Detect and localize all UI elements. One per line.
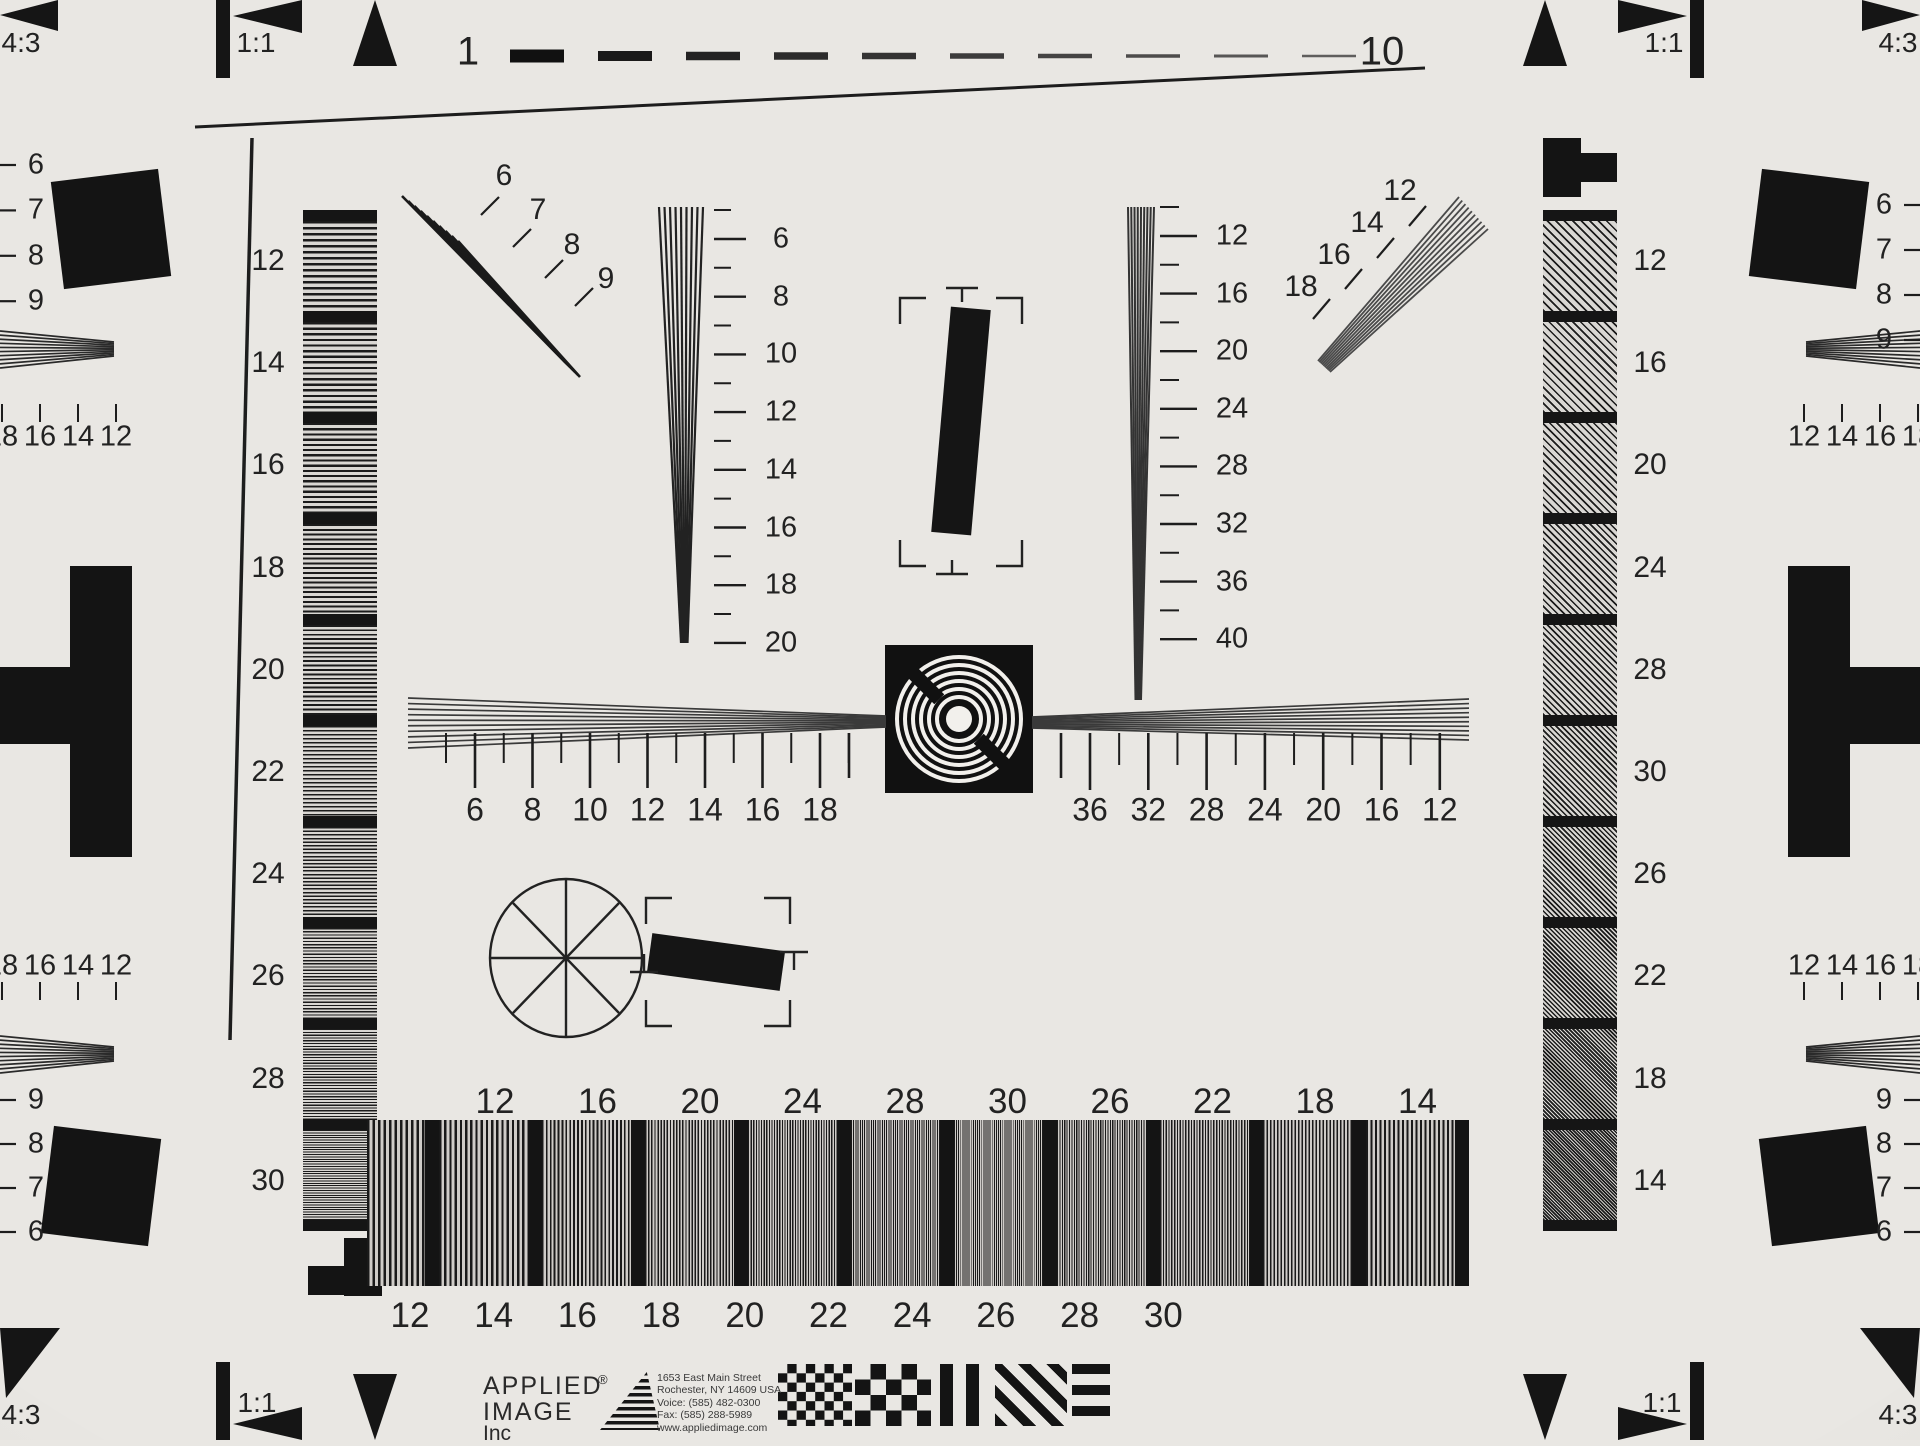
scale-label: 8	[773, 280, 789, 313]
scale-label: 8	[564, 228, 581, 262]
scale-label: 12	[100, 421, 132, 454]
strip-separator	[1543, 311, 1617, 322]
scale-label: 9	[598, 262, 615, 296]
ratio-label-br: 4:3	[1879, 1399, 1918, 1431]
scale-label: 20	[251, 653, 284, 687]
bullseye-target	[885, 645, 1033, 793]
strip-grating	[1543, 1029, 1617, 1119]
bar-grating	[1057, 1120, 1146, 1286]
checkerboard-coarse-patch	[855, 1364, 931, 1426]
scale-label: 28	[251, 1062, 284, 1096]
scale-label: 18	[765, 569, 797, 602]
scale-label: 8	[28, 1128, 44, 1161]
scale-label: 24	[251, 857, 284, 891]
scale-label: 16	[745, 792, 781, 829]
scale-label: 6	[28, 1216, 44, 1249]
scale-label: 12	[1633, 244, 1666, 278]
scale-label: 28	[886, 1082, 925, 1122]
strip-separator	[303, 513, 377, 524]
strip-grating	[1543, 827, 1617, 917]
scale-label: 9	[28, 1084, 44, 1117]
scale-label: 24	[1216, 392, 1248, 425]
strip-separator	[1543, 1220, 1617, 1231]
address-line: Voice: (585) 482-0300	[657, 1397, 781, 1409]
strip-separator	[303, 1119, 377, 1130]
ratio-label-bl: 4:3	[2, 1399, 41, 1431]
scale-label: 14	[1633, 1164, 1666, 1198]
strip-separator	[303, 1220, 377, 1231]
scale-label: 18	[642, 1296, 681, 1336]
scale-label: 20	[1305, 792, 1341, 829]
strip-grating	[303, 221, 377, 311]
scale-label: 30	[988, 1082, 1027, 1122]
checkerboard-fine-patch	[778, 1364, 852, 1426]
bar-separator	[1352, 1120, 1366, 1286]
scale-label: 32	[1216, 508, 1248, 541]
bar-separator	[1146, 1120, 1160, 1286]
scale-label: 7	[530, 193, 547, 227]
scale-label: 20	[725, 1296, 764, 1336]
bar-grating	[542, 1120, 631, 1286]
scale-label: 30	[1633, 755, 1666, 789]
brand-line-1: APPLIED	[483, 1372, 603, 1401]
scale-label: 36	[1216, 565, 1248, 598]
bar-grating	[1366, 1120, 1455, 1286]
left-resolution-strip	[303, 210, 377, 1231]
scale-label: 26	[251, 959, 284, 993]
scale-label: 30	[251, 1164, 284, 1198]
strip-separator	[303, 311, 377, 322]
bar-grating	[954, 1120, 1043, 1286]
strip-separator	[1543, 513, 1617, 524]
brand-address-block: 1653 East Main Street Rochester, NY 1460…	[657, 1372, 781, 1434]
strip-separator	[303, 412, 377, 423]
scale-label: 16	[1864, 421, 1896, 454]
strip-separator	[1543, 614, 1617, 625]
scale-label: 12	[391, 1296, 430, 1336]
scale-label: 7	[28, 1172, 44, 1205]
square-label-bl: 1:1	[238, 1387, 277, 1419]
strip-separator	[1543, 715, 1617, 726]
scale-label: 8	[1876, 1128, 1892, 1161]
bar-grating	[1160, 1120, 1249, 1286]
ratio-label-tr: 4:3	[1879, 27, 1918, 59]
scale-label: 7	[1876, 1172, 1892, 1205]
scale-label: 8	[1876, 279, 1892, 312]
scale-label: 14	[765, 453, 797, 486]
scale-label: 12	[630, 792, 666, 829]
scale-label: 10	[572, 792, 608, 829]
strip-grating	[303, 625, 377, 715]
scale-label: 12	[100, 950, 132, 983]
bar-grating	[439, 1120, 528, 1286]
strip-grating	[1543, 423, 1617, 513]
brand-line-3: Inc	[483, 1422, 511, 1446]
scale-label: 6	[1876, 1216, 1892, 1249]
address-line: 1653 East Main Street	[657, 1372, 781, 1384]
address-line: Rochester, NY 14609 USA	[657, 1384, 781, 1396]
bar-grating	[851, 1120, 940, 1286]
scale-label: 12	[1422, 792, 1458, 829]
scale-label: 16	[251, 448, 284, 482]
scale-label: 16	[24, 950, 56, 983]
scale-label: 18	[251, 551, 284, 585]
scale-label: 16	[1364, 792, 1400, 829]
scale-label: 14	[1826, 950, 1858, 983]
scale-label: 22	[809, 1296, 848, 1336]
scale-label: 6	[496, 159, 513, 193]
scale-label: 40	[1216, 623, 1248, 656]
scale-label: 8	[28, 239, 44, 272]
scale-label: 9	[1876, 324, 1892, 357]
scale-label: 9	[28, 285, 44, 318]
scale-label: 16	[1633, 346, 1666, 380]
scale-label: 7	[28, 194, 44, 227]
strip-grating	[303, 322, 377, 412]
scale-label: 26	[1633, 857, 1666, 891]
scale-label: 18	[1902, 421, 1920, 454]
scale-label: 36	[1072, 792, 1108, 829]
right-resolution-strip	[1543, 210, 1617, 1231]
strip-grating	[1543, 928, 1617, 1018]
bar-separator	[1455, 1120, 1469, 1286]
ratio-label-tl: 4:3	[2, 27, 41, 59]
scale-label: 24	[1633, 551, 1666, 585]
scale-label: 18	[802, 792, 838, 829]
strip-separator	[1543, 412, 1617, 423]
bar-grating	[748, 1120, 837, 1286]
scale-label: 26	[976, 1296, 1015, 1336]
bar-separator	[1249, 1120, 1263, 1286]
scale-label: 28	[1060, 1296, 1099, 1336]
strip-separator	[303, 917, 377, 928]
scale-label: 16	[24, 421, 56, 454]
scale-label: 14	[1398, 1082, 1437, 1122]
scale-label: 20	[1216, 335, 1248, 368]
bar-separator	[631, 1120, 645, 1286]
strip-grating	[303, 423, 377, 513]
scale-label: 22	[251, 755, 284, 789]
scale-label: 16	[1317, 238, 1350, 272]
strip-separator	[1543, 917, 1617, 928]
strip-separator	[303, 715, 377, 726]
scale-label: 12	[251, 244, 284, 278]
square-label-tr: 1:1	[1645, 27, 1684, 59]
scale-label: 14	[474, 1296, 513, 1336]
strip-separator	[1543, 816, 1617, 827]
scale-label: 18	[1284, 270, 1317, 304]
scale-label: 20	[681, 1082, 720, 1122]
strip-grating	[1543, 322, 1617, 412]
strip-separator	[303, 210, 377, 221]
top-scale-end: 10	[1360, 30, 1405, 75]
strip-grating	[1543, 524, 1617, 614]
scale-label: 16	[765, 511, 797, 544]
strip-grating	[1543, 221, 1617, 311]
strip-separator	[1543, 1018, 1617, 1029]
bar-grating	[1263, 1120, 1352, 1286]
scale-label: 14	[62, 950, 94, 983]
scale-label: 20	[1633, 448, 1666, 482]
scale-label: 18	[1902, 950, 1920, 983]
scale-label: 12	[476, 1082, 515, 1122]
scale-label: 6	[28, 149, 44, 182]
strip-separator	[303, 816, 377, 827]
resolution-test-chart: 4:3 1:1 1:1 4:3 4:3 1:1 1:1 4:3 1 10 121…	[0, 0, 1920, 1440]
scale-label: 12	[1788, 950, 1820, 983]
bottom-resolution-bar	[367, 1120, 1472, 1286]
bar-separator	[425, 1120, 439, 1286]
strip-grating	[303, 928, 377, 1018]
square-label-br: 1:1	[1643, 1387, 1682, 1419]
strip-grating	[1543, 1130, 1617, 1220]
scale-label: 6	[466, 792, 484, 829]
scale-label: 18	[0, 421, 18, 454]
scale-label: 12	[1788, 421, 1820, 454]
strip-separator	[1543, 1119, 1617, 1130]
strip-grating	[303, 827, 377, 917]
scale-label: 16	[1864, 950, 1896, 983]
strip-grating	[303, 524, 377, 614]
spoked-circle	[490, 879, 642, 1037]
scale-label: 14	[1350, 206, 1383, 240]
scale-label: 14	[1826, 421, 1858, 454]
scale-label: 9	[1876, 1084, 1892, 1117]
scale-label: 16	[558, 1296, 597, 1336]
top-dash-scale	[510, 50, 1356, 63]
strip-separator	[303, 1018, 377, 1029]
strip-grating	[303, 1029, 377, 1119]
scale-label: 12	[765, 396, 797, 429]
bar-separator	[940, 1120, 954, 1286]
scale-label: 18	[0, 950, 18, 983]
strip-grating	[303, 726, 377, 816]
scale-label: 7	[1876, 234, 1892, 267]
vertical-bars-patch	[940, 1364, 980, 1426]
bar-separator	[734, 1120, 748, 1286]
scale-label: 14	[251, 346, 284, 380]
strip-separator	[303, 614, 377, 625]
scale-label: 32	[1131, 792, 1167, 829]
scale-label: 18	[1633, 1062, 1666, 1096]
address-line: www.appliedimage.com	[657, 1422, 781, 1434]
bar-grating	[645, 1120, 734, 1286]
scale-label: 24	[1247, 792, 1283, 829]
scale-label: 28	[1633, 653, 1666, 687]
scale-label: 6	[773, 223, 789, 256]
square-label-tl: 1:1	[237, 27, 276, 59]
strip-grating	[1543, 726, 1617, 816]
horizontal-bars-patch	[1072, 1364, 1110, 1426]
scale-label: 30	[1144, 1296, 1183, 1336]
scale-label: 28	[1189, 792, 1225, 829]
scale-label: 14	[62, 421, 94, 454]
scale-label: 6	[1876, 189, 1892, 222]
scale-label: 10	[765, 338, 797, 371]
scale-label: 16	[1216, 277, 1248, 310]
slanted-edge-lines	[195, 68, 1425, 1040]
scale-label: 16	[578, 1082, 617, 1122]
scale-label: 26	[1091, 1082, 1130, 1122]
scale-label: 28	[1216, 450, 1248, 483]
bar-separator	[837, 1120, 851, 1286]
strip-separator	[1543, 210, 1617, 221]
top-scale-start: 1	[457, 30, 479, 75]
scale-label: 8	[524, 792, 542, 829]
strip-grating	[1543, 625, 1617, 715]
registered-mark: ®	[598, 1372, 608, 1387]
scale-label: 20	[765, 626, 797, 659]
scale-label: 18	[1296, 1082, 1335, 1122]
address-line: Fax: (585) 288-5989	[657, 1409, 781, 1421]
bar-grating	[367, 1120, 425, 1286]
scale-label: 12	[1216, 220, 1248, 253]
bar-separator	[1043, 1120, 1057, 1286]
bar-separator	[528, 1120, 542, 1286]
scale-label: 22	[1633, 959, 1666, 993]
scale-label: 14	[687, 792, 723, 829]
diagonal-stripes-patch	[995, 1364, 1067, 1426]
scale-label: 12	[1383, 174, 1416, 208]
scale-label: 24	[783, 1082, 822, 1122]
strip-grating	[303, 1130, 377, 1220]
scale-label: 22	[1193, 1082, 1232, 1122]
scale-label: 24	[893, 1296, 932, 1336]
